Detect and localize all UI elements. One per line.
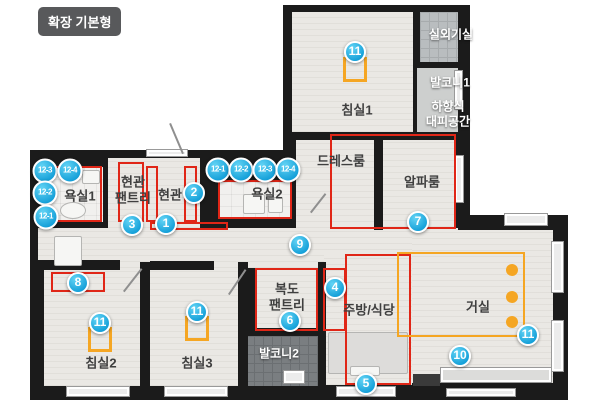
label-corridor-pantry-line1: 복도 [269, 281, 305, 297]
badge-12-2-bath1[interactable]: 12-2 [33, 181, 58, 206]
badge-2[interactable]: 2 [183, 182, 205, 204]
orange-dot [506, 264, 518, 276]
badge-8[interactable]: 8 [67, 272, 89, 294]
badge-11-living[interactable]: 11 [517, 324, 539, 346]
label-bathroom2: 욕실2 [251, 184, 282, 203]
badge-1[interactable]: 1 [155, 213, 177, 235]
label-outdoor-unit-room: 실외기실 [429, 26, 473, 43]
badge-9[interactable]: 9 [289, 234, 311, 256]
window [446, 388, 516, 397]
label-kitchen: 주방/식당 [343, 300, 394, 319]
wall [413, 374, 440, 386]
wall [150, 261, 214, 270]
floor-plan: 확장 기본형 침실1 실외기실 발코니1 하향식 대피공간 드레스룸 알파룸 욕… [0, 0, 600, 403]
label-bathroom1: 욕실1 [64, 186, 95, 205]
badge-12-1-bath2[interactable]: 12-1 [206, 158, 231, 183]
label-corridor-pantry: 복도 팬트리 [269, 281, 305, 312]
window [66, 386, 130, 397]
orange-dot [506, 291, 518, 303]
plan-type-title: 확장 기본형 [38, 7, 121, 36]
label-bedroom1: 침실1 [341, 100, 372, 119]
badge-12-2-bath2[interactable]: 12-2 [229, 158, 254, 183]
label-dressroom: 드레스룸 [317, 151, 365, 170]
badge-11-bedroom2[interactable]: 11 [89, 312, 111, 334]
badge-11-bedroom1[interactable]: 11 [344, 41, 366, 63]
window [283, 370, 305, 384]
label-alpha-room: 알파룸 [404, 172, 440, 191]
label-balcony2: 발코니2 [259, 345, 299, 362]
wall [140, 262, 150, 386]
badge-7[interactable]: 7 [407, 211, 429, 233]
badge-10[interactable]: 10 [449, 345, 471, 367]
badge-12-4-bath2[interactable]: 12-4 [276, 158, 301, 183]
label-bedroom3: 침실3 [181, 353, 212, 372]
label-entrance-pantry: 현관 팬트리 [115, 174, 151, 205]
badge-11-bedroom3[interactable]: 11 [186, 301, 208, 323]
label-balcony1: 발코니1 [430, 74, 470, 91]
wall [238, 262, 248, 386]
orange-dot [506, 316, 518, 328]
label-entrance: 현관 [158, 185, 182, 204]
label-living-room: 거실 [466, 297, 490, 316]
window-living-sill [440, 367, 552, 383]
badge-4[interactable]: 4 [324, 277, 346, 299]
badge-6[interactable]: 6 [279, 310, 301, 332]
badge-3[interactable]: 3 [121, 214, 143, 236]
window [504, 213, 548, 226]
badge-12-1-bath1[interactable]: 12-1 [34, 205, 59, 230]
label-entrance-pantry-line2: 팬트리 [115, 190, 151, 206]
label-entrance-pantry-line1: 현관 [115, 174, 151, 190]
window [164, 386, 228, 397]
window [551, 241, 564, 293]
badge-12-3-bath2[interactable]: 12-3 [253, 158, 278, 183]
label-bedroom2: 침실2 [85, 353, 116, 372]
window [551, 320, 564, 372]
badge-5[interactable]: 5 [355, 373, 377, 395]
badge-12-4-bath1[interactable]: 12-4 [58, 159, 83, 184]
label-evac-line2: 대피공간 [426, 113, 470, 130]
washer [54, 236, 82, 266]
